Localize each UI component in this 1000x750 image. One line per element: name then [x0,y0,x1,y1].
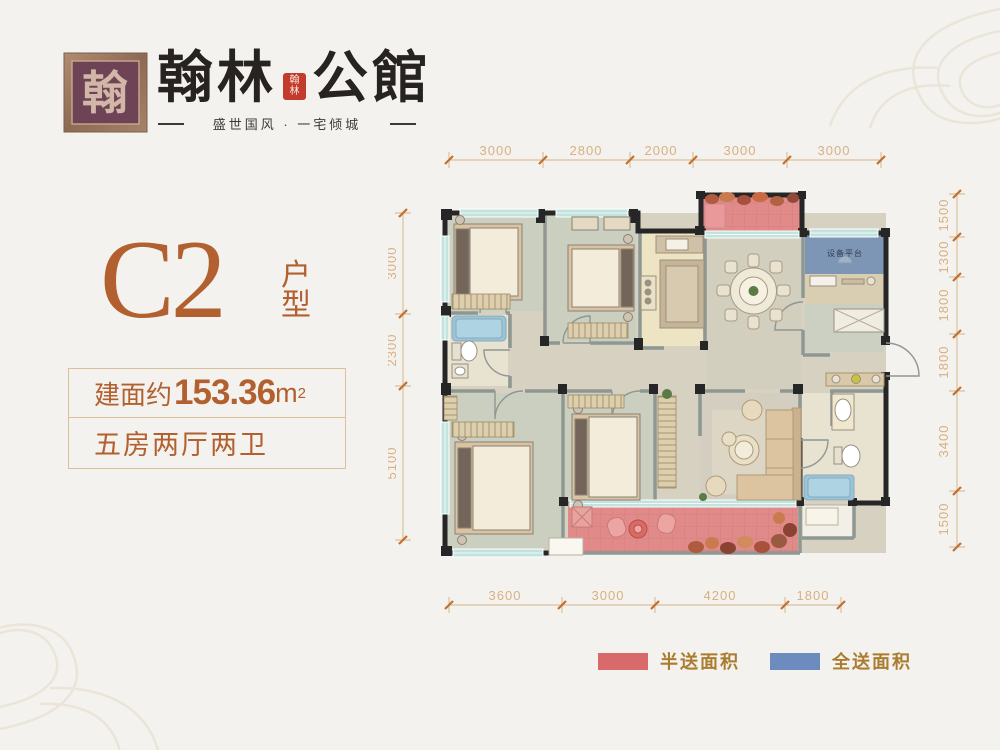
svg-text:2800: 2800 [570,143,603,158]
svg-text:1500: 1500 [936,503,951,536]
floor-plan: 设备平台 3000 2800 2000 3000 3000 3600 3000 [388,138,978,620]
unit-code: C2 [100,224,223,336]
area-unit: m [275,378,298,409]
legend-label-half-gift: 半送面积 [660,648,740,674]
brand-seal-logo: 翰 [63,52,148,133]
area-sup: 2 [298,385,306,402]
cloud-motif-bottom-left [0,610,170,750]
svg-text:4200: 4200 [704,588,737,603]
dim-chain-right: 1500 1300 1800 1800 3400 1500 [936,190,965,551]
brand-left-text: 翰林 [157,51,277,107]
svg-text:1800: 1800 [936,289,951,322]
mini-red-seal: 翰 林 [283,73,306,100]
mini-seal-char-2: 林 [290,86,300,97]
room-label-equipment-platform: 设备平台 [827,248,863,258]
area-row: 建面约153.36m2 [69,369,345,418]
brand-tagline-row: 盛世国风 · 一宅倾城 [158,114,416,133]
legend-swatch-full-gift [770,653,820,670]
svg-text:1300: 1300 [936,241,951,274]
brand-tagline: 盛世国风 · 一宅倾城 [184,114,390,133]
svg-text:3000: 3000 [724,143,757,158]
dim-chain-top: 3000 2800 2000 3000 3000 [445,143,885,168]
tagline-dash-right [390,123,416,125]
svg-text:1800: 1800 [797,588,830,603]
specs-box: 建面约153.36m2 五房两厅两卫 [68,368,346,469]
brand-name-row: 翰林 翰 林 公館 [157,48,432,110]
svg-text:3000: 3000 [388,247,399,280]
layout-row: 五房两厅两卫 [69,418,345,467]
svg-text:5100: 5100 [388,447,399,480]
svg-text:2300: 2300 [388,334,399,367]
dim-chain-left: 3000 2300 5100 [388,209,411,544]
mini-seal-char-1: 翰 [290,75,300,86]
svg-text:3000: 3000 [480,143,513,158]
layout-text: 五房两厅两卫 [94,423,268,462]
tagline-dash-left [158,123,184,125]
svg-text:3600: 3600 [489,588,522,603]
svg-text:1800: 1800 [936,346,951,379]
svg-text:3000: 3000 [818,143,851,158]
brand-right-text: 公館 [312,51,432,107]
svg-text:3000: 3000 [592,588,625,603]
svg-text:1500: 1500 [936,199,951,232]
area-prefix: 建面约 [94,375,172,412]
seal-glyph: 翰 [82,68,128,119]
dining-table [717,254,790,329]
dim-chain-bottom: 3600 3000 4200 1800 [445,588,845,613]
legend-label-full-gift: 全送面积 [832,648,912,674]
legend: 半送面积 全送面积 [598,648,912,674]
legend-swatch-half-gift [598,653,648,670]
svg-text:2000: 2000 [645,143,678,158]
svg-text:3400: 3400 [936,425,951,458]
cloud-motif-top-right [810,0,1000,130]
unit-type-label: 户型 [279,261,313,321]
area-value: 153.36 [174,373,275,413]
